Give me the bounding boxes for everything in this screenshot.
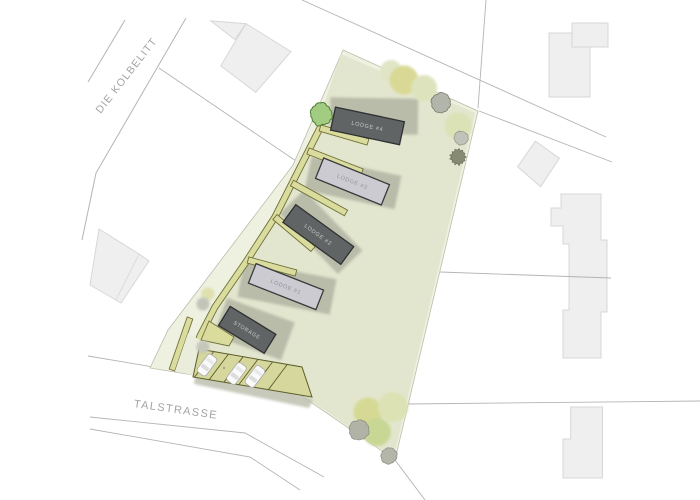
svg-text:DIE KOLBELITT: DIE KOLBELITT bbox=[94, 35, 160, 115]
svg-text:TALSTRASSE: TALSTRASSE bbox=[133, 398, 219, 422]
